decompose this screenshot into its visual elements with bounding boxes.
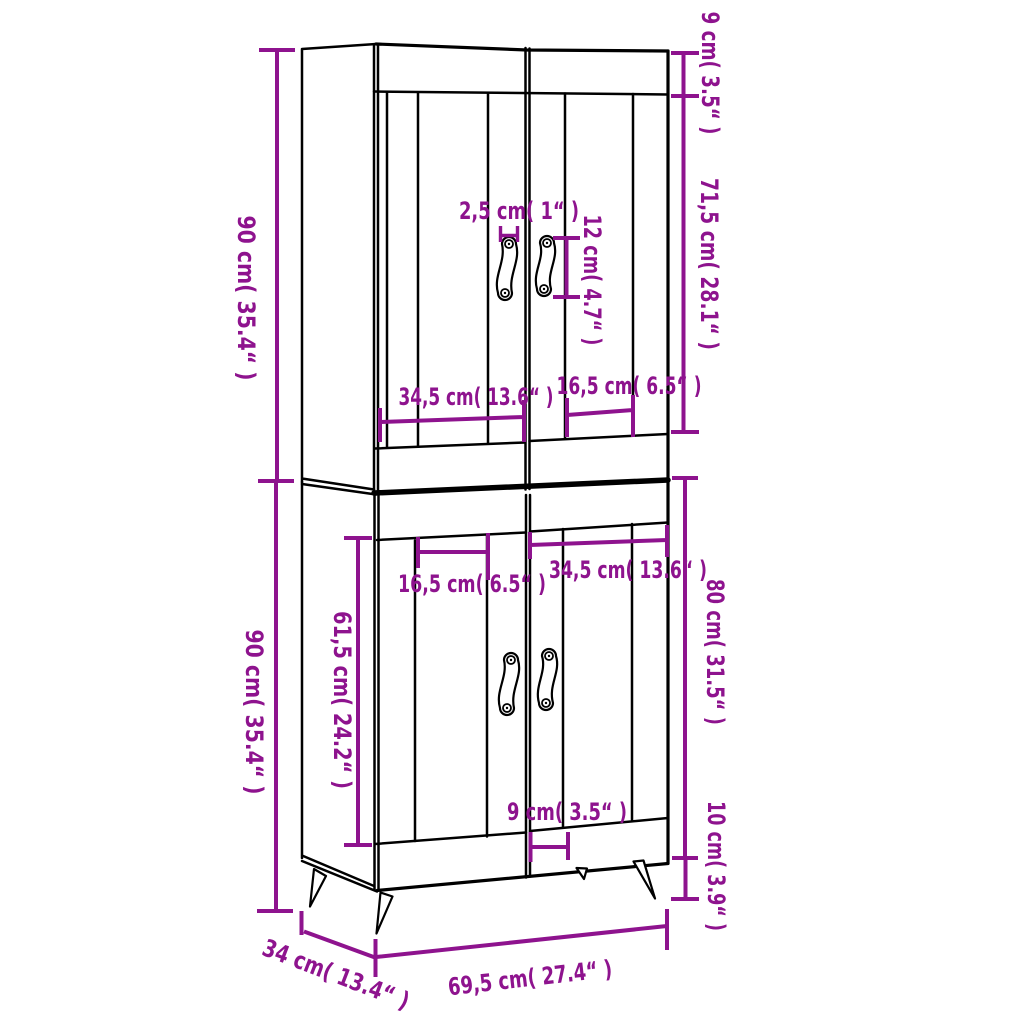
screw-dot <box>548 655 550 657</box>
cabinet-dimension-diagram: 90 cm( 35.4“ ) 90 cm( 35.4“ ) 61,5 cm( 2… <box>0 0 1024 1024</box>
lower-top-rail <box>377 523 668 541</box>
screw-dot <box>506 707 508 709</box>
label-total-width: 69,5 cm( 27.4“ ) <box>447 955 614 1001</box>
dim-upper-right-door-width <box>567 395 633 437</box>
screw-dot <box>546 242 548 244</box>
screw-dot <box>504 292 506 294</box>
label-lower-door-height: 61,5 cm( 24.2“ ) <box>328 611 356 789</box>
leg-front-left <box>377 893 393 934</box>
dim-handle-length <box>553 238 580 297</box>
dim-lower-unit-height <box>672 478 698 858</box>
screw-dot <box>508 243 510 245</box>
leg-back-middle <box>577 868 588 879</box>
label-bottom-center-width: 9 cm( 3.5“ ) <box>507 798 627 826</box>
label-lower-right-door-width: 34,5 cm( 13.6“ ) <box>549 556 707 584</box>
leg-back-left <box>310 869 326 907</box>
label-top-rail-height: 9 cm( 3.5“ ) <box>696 12 724 135</box>
label-depth: 34 cm( 13.4“ ) <box>258 934 413 1016</box>
unit-junction-line <box>374 480 668 493</box>
legs <box>310 861 655 934</box>
screw-dot <box>545 702 547 704</box>
label-lower-unit-height: 80 cm( 31.5“ ) <box>701 579 729 725</box>
label-lower-left-door-width: 16,5 cm( 6.5“ ) <box>398 570 546 598</box>
upper-side-panel <box>302 44 376 495</box>
screw-dot <box>543 288 545 290</box>
diagram-canvas: 90 cm( 35.4“ ) 90 cm( 35.4“ ) 61,5 cm( 2… <box>0 0 1024 1024</box>
screw-dot <box>510 659 512 661</box>
upper-front-top-edge <box>376 44 668 51</box>
label-lower-height-left: 90 cm( 35.4“ ) <box>240 630 268 795</box>
label-upper-door-height: 71,5 cm( 28.1“ ) <box>695 178 723 350</box>
label-leg-height: 10 cm( 3.9“ ) <box>702 801 730 931</box>
label-handle-length: 12 cm( 4.7“ ) <box>578 215 606 346</box>
upper-center-stile <box>526 48 530 490</box>
dim-upper-height-left <box>258 50 295 481</box>
upper-front-left-edge <box>374 45 378 494</box>
lower-front-left-edge <box>375 494 379 890</box>
lower-front-bottom-edge <box>377 864 668 891</box>
dim-leg-height <box>671 858 699 899</box>
label-upper-height-left: 90 cm( 35.4“ ) <box>232 216 260 381</box>
dim-bottom-center-width <box>530 832 568 862</box>
dim-top-rail-height <box>671 53 699 96</box>
label-upper-left-door-width: 34,5 cm( 13.6“ ) <box>399 383 554 411</box>
label-upper-right-door-width: 16,5 cm( 6.5“ ) <box>557 372 702 400</box>
upper-unit <box>302 44 668 495</box>
label-handle-inset: 2,5 cm( 1“ ) <box>459 197 579 225</box>
